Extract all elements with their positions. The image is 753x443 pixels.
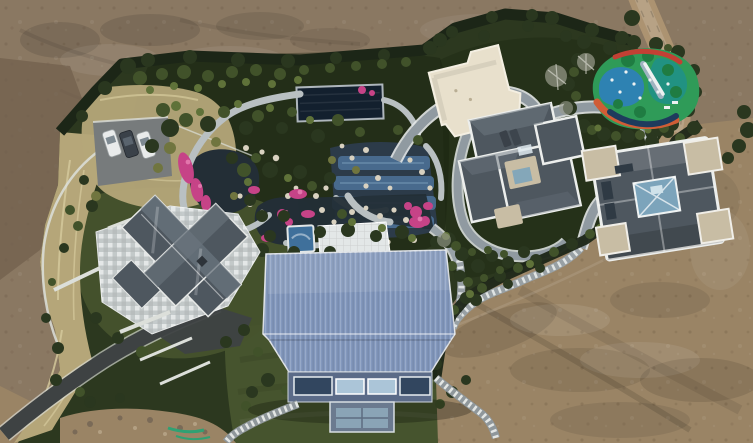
east-villa xyxy=(582,130,734,262)
aerial-photo xyxy=(0,0,753,443)
barn-roof-sheen xyxy=(266,250,450,294)
aerial-photo-canvas xyxy=(0,0,753,443)
playground xyxy=(593,48,700,129)
barn-lower-deck xyxy=(330,402,394,432)
